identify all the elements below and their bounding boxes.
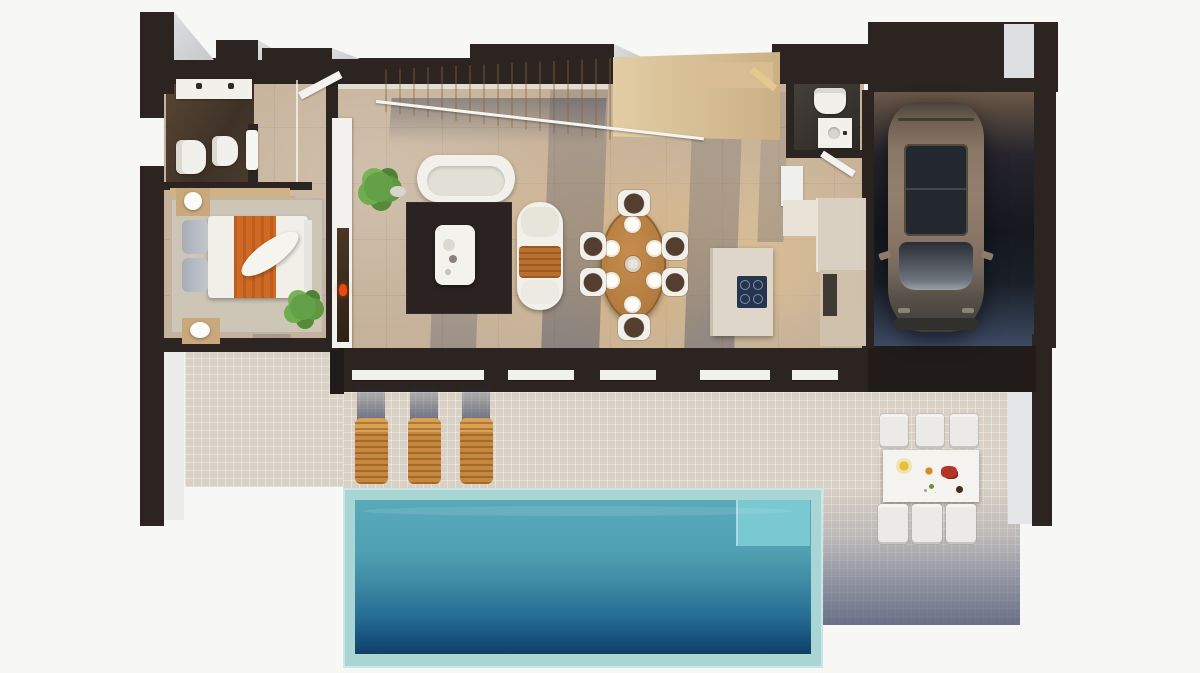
outdoor-chair	[946, 504, 976, 544]
hob-burner	[753, 280, 763, 290]
roof-panel-gray	[1004, 24, 1034, 78]
slider-sill	[508, 370, 574, 380]
chaise-sofa	[517, 202, 563, 310]
towel	[246, 130, 258, 170]
pool-steps	[736, 500, 810, 546]
outdoor-chair	[880, 414, 908, 448]
dining-chair	[580, 268, 606, 296]
food-plate-lemon	[896, 458, 912, 474]
outdoor-chair	[916, 414, 944, 448]
sun-lounger	[460, 418, 493, 484]
lounger-shadow	[410, 388, 438, 420]
outdoor-chair	[912, 504, 942, 544]
pillow	[182, 258, 208, 292]
bedroom-facade-wall	[140, 338, 336, 352]
food-plate	[922, 464, 936, 478]
counter-run	[816, 198, 866, 272]
sofa-seat	[427, 166, 505, 196]
dining-chair	[580, 232, 606, 260]
wall-left-lower-face	[164, 338, 184, 520]
place-setting	[626, 298, 639, 311]
wc-toilet	[814, 88, 846, 114]
villa-floorplan-render	[0, 0, 1200, 673]
induction-hob	[737, 276, 767, 308]
parapet-side-face	[174, 12, 214, 60]
garage-door	[868, 346, 1036, 392]
decor-bowl	[449, 255, 457, 263]
wall-right-garage	[1034, 22, 1056, 348]
slider-sill	[792, 370, 838, 380]
decor-candle	[445, 269, 451, 275]
place-setting	[626, 218, 639, 231]
hob-burner	[740, 294, 750, 304]
hob-burner	[753, 294, 763, 304]
plant-pot	[390, 186, 406, 197]
decor-plate	[443, 239, 455, 251]
appliance-niche	[823, 274, 837, 316]
food-bowl	[956, 486, 963, 493]
pool-water	[355, 500, 811, 654]
wc-wall-left	[786, 80, 794, 156]
parapet	[216, 40, 258, 84]
dining-chair	[662, 268, 688, 296]
food-berries	[941, 466, 957, 478]
plant-living	[364, 172, 394, 202]
curved-sofa	[417, 155, 515, 202]
pillow	[182, 220, 208, 254]
dining-table	[600, 210, 666, 320]
bath-faucet	[228, 83, 234, 89]
chaise-seat	[521, 280, 559, 304]
car-headlight	[962, 308, 974, 313]
wc-tap	[843, 131, 847, 135]
bath-faucet	[196, 83, 202, 89]
slider-sill	[700, 370, 770, 380]
chaise-cushion	[521, 207, 559, 237]
outdoor-chair	[950, 414, 978, 448]
stool	[190, 322, 210, 338]
outdoor-table	[883, 450, 979, 502]
fireplace-flame	[339, 284, 347, 296]
bedroom-window-gap	[140, 118, 164, 166]
car-headlight	[898, 308, 910, 313]
lounger-shadow	[357, 388, 385, 420]
parapet	[772, 44, 872, 84]
place-setting	[605, 274, 618, 287]
shower-glass-screen	[296, 80, 298, 182]
dining-chair	[662, 232, 688, 260]
place-setting	[648, 242, 661, 255]
parapet-side-face	[332, 48, 360, 59]
swimming-pool	[343, 488, 823, 668]
wc-basin-vanity	[818, 118, 852, 148]
table-lamp	[184, 192, 202, 210]
wall-left-lower	[140, 332, 164, 526]
hob-burner	[740, 280, 750, 290]
toilet	[176, 140, 206, 174]
wall-left	[140, 44, 164, 348]
chaise-throw	[519, 246, 561, 278]
bed-footboard	[304, 220, 312, 294]
sun-lounger	[408, 418, 441, 484]
double-bed	[178, 214, 310, 300]
sun-lounger	[355, 418, 388, 484]
car-trunk-line	[898, 118, 974, 121]
bidet	[212, 136, 238, 166]
dining-chair	[618, 190, 650, 216]
outdoor-chair	[878, 504, 908, 544]
bath-vanity	[176, 79, 252, 99]
water-highlight	[363, 506, 793, 516]
car-front-bumper	[894, 318, 978, 330]
suv-car	[888, 102, 984, 332]
car-windshield	[899, 242, 973, 290]
place-setting	[605, 242, 618, 255]
wc-basin	[828, 127, 840, 139]
dining-chair	[618, 314, 650, 340]
terrace-left	[185, 352, 343, 487]
slider-sill	[600, 370, 656, 380]
coffee-table	[435, 225, 475, 285]
place-setting	[648, 274, 661, 287]
slider-sill	[352, 370, 484, 380]
kitchen-island	[713, 248, 773, 336]
sunroof-divider	[906, 188, 966, 190]
lounger-shadow	[462, 388, 490, 420]
car-sunroof	[904, 144, 968, 236]
food-sprigs	[929, 484, 934, 489]
plant-bedroom	[290, 294, 316, 320]
centerpiece	[625, 256, 641, 272]
